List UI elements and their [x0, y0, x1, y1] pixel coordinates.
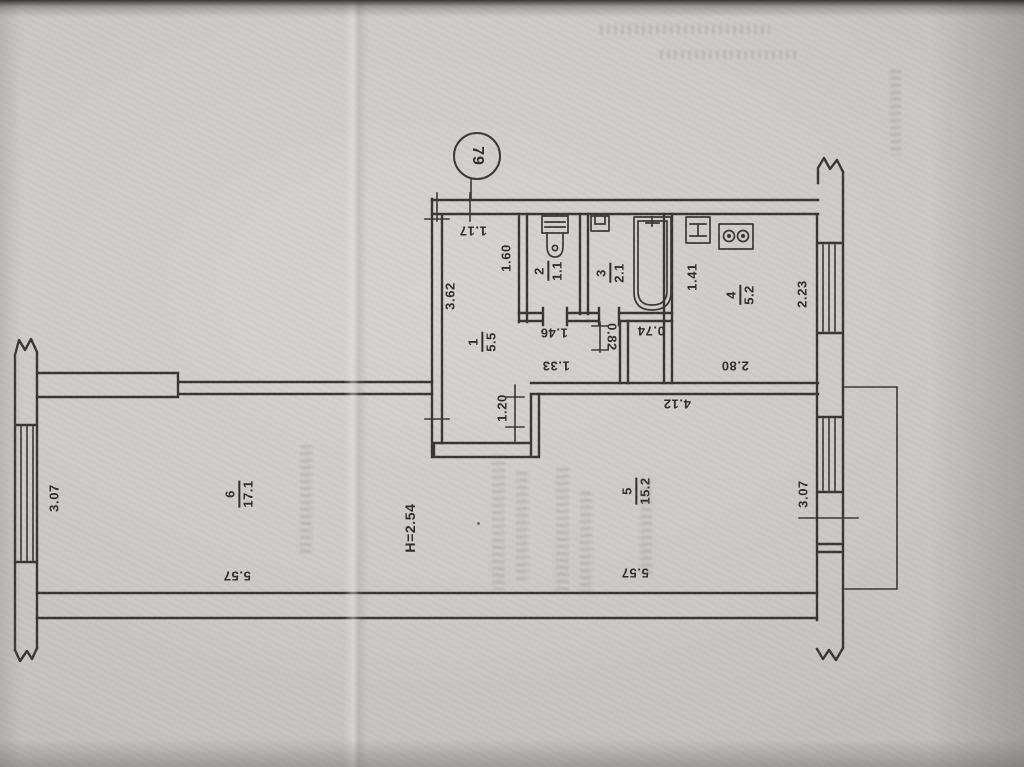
- dim-kitchen-width: 2.80: [721, 359, 749, 374]
- ink-bleed-smudge: [516, 472, 528, 584]
- room-number: 1: [466, 338, 480, 346]
- top-outer-wall: [432, 200, 818, 214]
- ceiling-height-label: H=2.54: [402, 503, 418, 552]
- room-number: 2: [532, 267, 546, 275]
- dim-kitchen-window: 2.23: [795, 280, 810, 308]
- dim-hall-length: 3.62: [443, 282, 458, 310]
- floor-plan-lines: [0, 0, 1024, 767]
- room-area: 2.1: [612, 263, 626, 283]
- room-label-2: 2 1.1: [532, 261, 563, 281]
- room-label-1: 1 5.5: [466, 332, 497, 352]
- ink-bleed-smudge: [600, 24, 770, 34]
- ink-bleed-smudge: [300, 445, 312, 555]
- left-window-glazing: [21, 427, 33, 560]
- ink-bleed-smudge: [492, 455, 505, 590]
- kitchen-sink-icon: [686, 217, 710, 243]
- ink-bleed-smudge: [640, 480, 652, 575]
- room-label-3: 3 2.1: [594, 263, 625, 283]
- right-window-wall: [817, 158, 843, 660]
- lobby-partition: [620, 321, 628, 383]
- dim-room6-bottom-width: 5.57: [223, 569, 251, 584]
- room5-top-wall: [531, 383, 818, 394]
- dim-lobby-depth: 0.82: [605, 323, 620, 351]
- room-label-4: 4 5.2: [724, 285, 755, 305]
- room-number: 5: [620, 487, 634, 495]
- bath-sink-icon: [591, 216, 609, 231]
- room-area: 5.5: [484, 332, 498, 352]
- dim-room5-top-width: 4.12: [663, 397, 691, 412]
- room-area: 17.1: [241, 480, 255, 507]
- room-number: 3: [594, 269, 608, 277]
- dim-entrance-door: 1.17: [459, 224, 487, 239]
- floor-plan-photo: 79 H=2.54 1 5.5 2 1.1 3 2.1 4 5.2 5 15.2: [0, 0, 1024, 767]
- dim-room5-door: 1.20: [495, 394, 510, 422]
- room6-top-wall: [37, 373, 432, 397]
- hall-length-ticks: [425, 219, 449, 419]
- floor-plan-drawing: 79 H=2.54 1 5.5 2 1.1 3 2.1 4 5.2 5 15.2: [0, 0, 1024, 767]
- dim-room5-window: 3.07: [796, 480, 811, 508]
- toilet-icon: [542, 216, 568, 257]
- paper-speck: [477, 522, 480, 525]
- hall-wc-partition: [519, 214, 527, 322]
- room-label-6: 6 17.1: [223, 480, 254, 507]
- ink-bleed-smudge: [580, 492, 592, 594]
- dim-hall-width: 1.60: [499, 244, 514, 272]
- stove-icon: [719, 224, 753, 249]
- ink-bleed-smudge: [660, 50, 800, 59]
- dim-kitchen-left: 1.41: [685, 263, 700, 291]
- dim-bath-passage: 0.74: [637, 324, 665, 339]
- ink-bleed-smudge: [556, 468, 569, 593]
- kitchen-window-glazing: [823, 245, 835, 331]
- bathtub-icon: [634, 217, 671, 310]
- hall-bottom-jog-wall: [434, 394, 539, 457]
- dim-lobby-width: 1.33: [542, 359, 570, 374]
- room5-window-glazing: [823, 419, 835, 490]
- room-area: 1.1: [550, 261, 564, 281]
- room-number: 6: [223, 490, 237, 498]
- balcony-outline: [845, 387, 897, 589]
- dim-wc-width: 1.46: [540, 326, 568, 341]
- room-area: 5.2: [742, 285, 756, 305]
- apartment-number: 79: [468, 146, 486, 166]
- wc-bottom-wall: [519, 308, 588, 325]
- wc-bath-partition: [580, 214, 588, 314]
- bottom-outer-wall: [37, 593, 817, 618]
- dim-room6-window: 3.07: [47, 484, 62, 512]
- ink-bleed-smudge: [890, 70, 901, 155]
- room-number: 4: [724, 291, 738, 299]
